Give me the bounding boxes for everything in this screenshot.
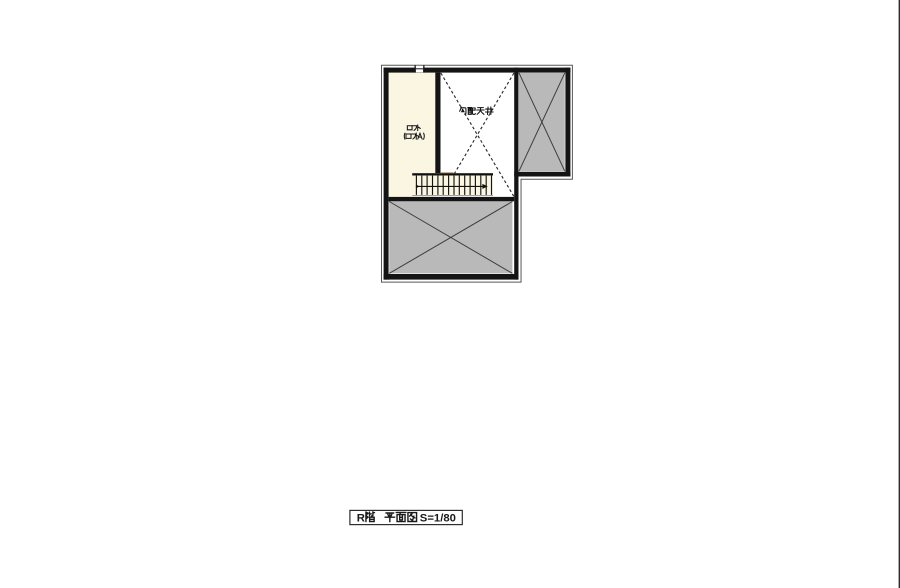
svg-text:S=1/80: S=1/80: [420, 513, 456, 525]
svg-text:R: R: [357, 513, 365, 525]
